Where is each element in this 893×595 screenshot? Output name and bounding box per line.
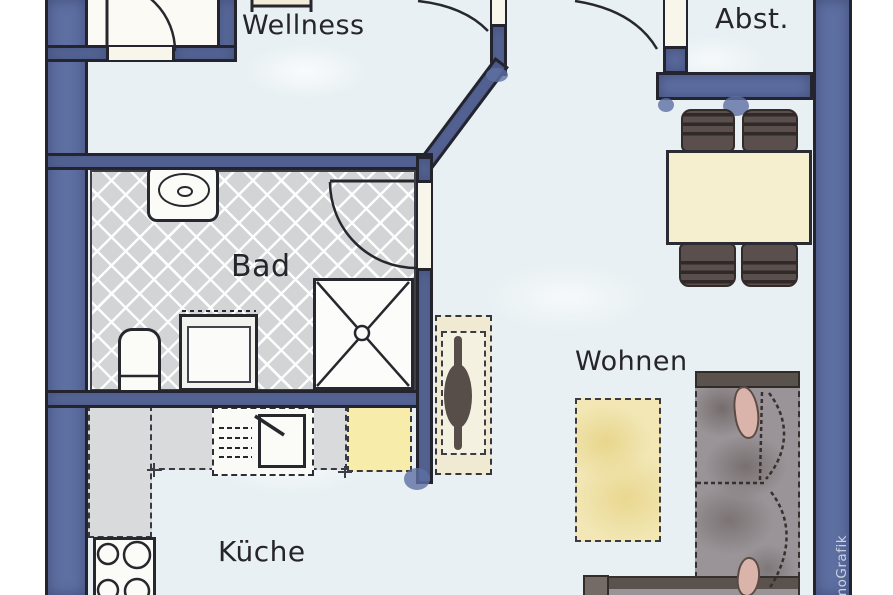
paint-bleed	[486, 68, 508, 82]
paint-bleed	[658, 98, 674, 112]
room-label-abstellraum: Abst.	[715, 2, 789, 35]
dining-chair	[681, 109, 735, 152]
wall-topleft-room-bottom-b	[172, 45, 237, 62]
wall-bathroom-top	[45, 153, 433, 170]
wall-topleft-room-bottom-a	[45, 45, 109, 62]
cut-off-bench	[253, 0, 311, 6]
paint-bleed	[404, 468, 430, 490]
watermark-text: moGrafik	[834, 535, 850, 595]
door-opening-abstellraum	[663, 0, 688, 46]
top-left-room-floor	[88, 0, 217, 46]
toilet	[118, 328, 161, 391]
rug	[575, 398, 661, 542]
dining-table	[666, 150, 812, 245]
wall-corridor-lower	[416, 268, 433, 484]
room-label-kueche: Küche	[218, 535, 306, 568]
shower	[313, 278, 414, 390]
wall-corridor-upper	[416, 156, 433, 183]
room-label-bad: Bad	[231, 249, 291, 284]
dining-chair	[741, 243, 798, 287]
console-oval-decor	[444, 364, 472, 428]
room-label-wohnen: Wohnen	[575, 346, 688, 377]
dining-chair	[742, 109, 798, 152]
wall-bathroom-bottom	[45, 390, 433, 408]
room-label-wellness: Wellness	[242, 10, 365, 41]
outer-wall-right	[813, 0, 852, 595]
corner-sofa-bottom-section	[583, 576, 800, 595]
corner-sofa-backrest-top	[695, 371, 800, 388]
door-opening-bathroom	[416, 183, 433, 268]
door-opening-hall-top	[490, 0, 507, 24]
kitchen-sink-basin	[258, 414, 306, 468]
dining-chair	[679, 243, 736, 287]
wall-abstellraum-left	[663, 46, 688, 74]
corner-sofa-armrest	[583, 575, 609, 595]
washbasin-drain	[177, 186, 193, 197]
stove	[93, 537, 156, 595]
washing-machine-drum	[187, 326, 251, 383]
door-opening-topleft-room	[109, 45, 172, 62]
outer-wall-left	[45, 0, 88, 595]
kitchen-counter-left-run	[88, 405, 152, 538]
floor-plan: Wellness Abst. Bad Wohnen Küche moGrafik	[0, 0, 893, 595]
fridge-cabinet	[347, 406, 412, 472]
